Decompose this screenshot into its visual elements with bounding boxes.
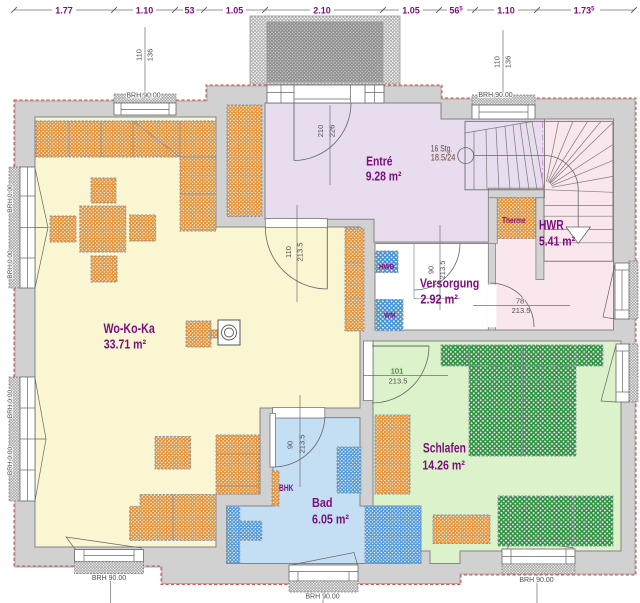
- svg-text:BHK: BHK: [279, 483, 294, 494]
- svg-text:Schlafen: Schlafen: [423, 440, 466, 456]
- svg-text:2.10: 2.10: [313, 5, 331, 15]
- svg-text:Bad: Bad: [312, 495, 333, 510]
- svg-text:33.71 m²: 33.71 m²: [104, 336, 147, 351]
- svg-text:136: 136: [504, 56, 513, 69]
- svg-text:WM: WM: [384, 311, 396, 320]
- svg-text:HWR: HWR: [539, 217, 564, 232]
- svg-text:110: 110: [135, 49, 144, 61]
- svg-text:213.5: 213.5: [389, 377, 408, 386]
- svg-text:90: 90: [286, 441, 295, 449]
- svg-text:110: 110: [493, 56, 502, 68]
- svg-text:136: 136: [146, 49, 155, 62]
- svg-text:Versorgung: Versorgung: [420, 275, 479, 290]
- svg-text:210: 210: [316, 125, 325, 138]
- svg-text:90: 90: [427, 266, 436, 274]
- svg-text:BRH 90.00: BRH 90.00: [126, 93, 160, 100]
- svg-text:213.5: 213.5: [296, 243, 305, 262]
- svg-text:Wo-Ko-Ka: Wo-Ko-Ka: [104, 320, 155, 336]
- svg-text:1.10: 1.10: [497, 5, 515, 15]
- svg-text:BRH 90.00: BRH 90.00: [519, 577, 553, 584]
- svg-text:BRH 0.00: BRH 0.00: [7, 390, 14, 419]
- svg-text:6.05 m²: 6.05 m²: [312, 511, 350, 526]
- svg-text:1.77: 1.77: [55, 5, 73, 15]
- svg-text:78: 78: [516, 296, 524, 305]
- svg-text:9.28 m²: 9.28 m²: [366, 170, 402, 184]
- svg-text:1.05: 1.05: [226, 5, 244, 15]
- svg-text:1.05: 1.05: [402, 5, 420, 15]
- svg-text:BRH 90.00: BRH 90.00: [478, 92, 512, 99]
- svg-text:Therme: Therme: [502, 215, 526, 225]
- svg-text:BRH 0.00: BRH 0.00: [7, 447, 14, 476]
- svg-text:BRH 90.00: BRH 90.00: [92, 575, 126, 582]
- svg-text:Entré: Entré: [366, 154, 392, 169]
- svg-text:BRH 90.00: BRH 90.00: [305, 594, 339, 601]
- svg-text:2.92 m²: 2.92 m²: [420, 292, 458, 307]
- svg-text:53: 53: [184, 5, 194, 15]
- svg-text:110: 110: [284, 246, 293, 258]
- svg-text:BRH 0.00: BRH 0.00: [7, 184, 14, 213]
- svg-text:18.5/24: 18.5/24: [431, 153, 456, 164]
- svg-text:213.5: 213.5: [298, 435, 307, 454]
- svg-text:213.5: 213.5: [512, 306, 531, 315]
- svg-text:HWB: HWB: [379, 262, 395, 271]
- svg-text:14.26 m²: 14.26 m²: [422, 459, 465, 473]
- svg-text:5.41 m²: 5.41 m²: [539, 235, 575, 249]
- svg-text:1.10: 1.10: [136, 5, 154, 15]
- svg-text:101: 101: [391, 367, 404, 376]
- svg-text:BRH 0.00: BRH 0.00: [7, 250, 14, 279]
- svg-text:226: 226: [328, 125, 337, 138]
